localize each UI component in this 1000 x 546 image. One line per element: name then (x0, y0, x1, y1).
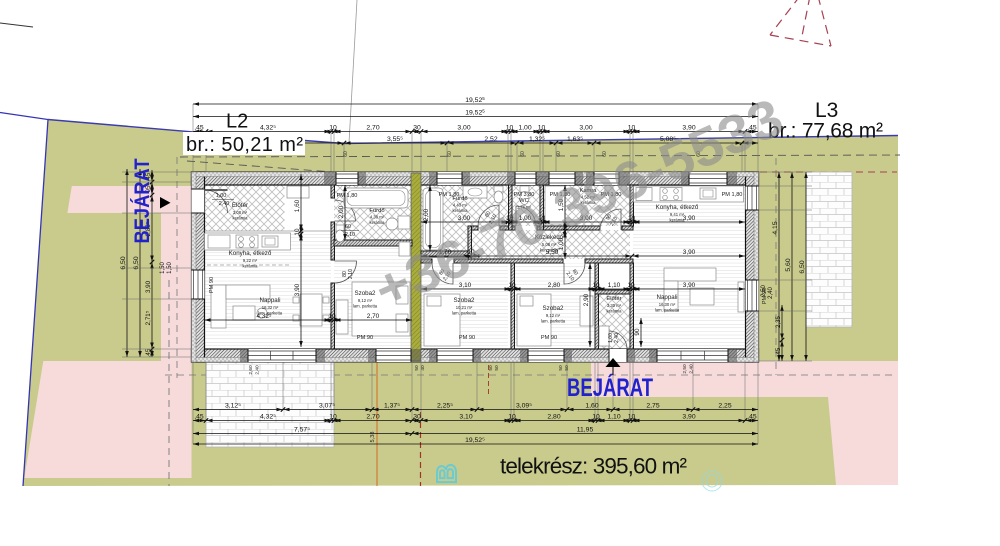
svg-text:Fürdő: Fürdő (369, 208, 384, 214)
svg-text:50: 50 (414, 365, 420, 371)
svg-text:9,12 m²: 9,12 m² (358, 298, 373, 303)
svg-text:7,57⁵: 7,57⁵ (294, 427, 310, 434)
svg-text:2,35: 2,35 (776, 316, 782, 328)
svg-text:50: 50 (494, 365, 500, 371)
svg-text:2,25⁵: 2,25⁵ (437, 403, 453, 410)
svg-text:30: 30 (413, 414, 421, 421)
svg-text:3,90: 3,90 (145, 280, 152, 293)
svg-text:60: 60 (602, 151, 608, 157)
svg-text:3,07⁵: 3,07⁵ (319, 403, 335, 410)
svg-text:2,90: 2,90 (583, 293, 590, 306)
svg-text:3,90: 3,90 (683, 282, 696, 289)
svg-text:Szoba2: Szoba2 (454, 297, 476, 304)
svg-text:1,37⁵: 1,37⁵ (384, 403, 400, 410)
svg-text:3,30 m²: 3,30 m² (607, 303, 622, 308)
svg-text:60: 60 (447, 151, 453, 157)
svg-text:kerámia: kerámia (243, 264, 259, 269)
svg-text:PM 90: PM 90 (459, 335, 475, 341)
svg-text:Előtér: Előtér (232, 202, 248, 209)
svg-text:,45: ,45 (194, 414, 204, 421)
svg-text:PM 1,80: PM 1,80 (722, 192, 743, 198)
svg-text:2,75: 2,75 (646, 403, 659, 410)
svg-text:30: 30 (413, 125, 421, 132)
svg-text:10: 10 (538, 125, 546, 132)
svg-text:60: 60 (345, 224, 351, 230)
svg-text:6,50: 6,50 (120, 256, 127, 269)
svg-text:10: 10 (592, 414, 600, 421)
svg-text:1,00: 1,00 (518, 125, 531, 132)
svg-text:3,10: 3,10 (459, 414, 472, 421)
svg-text:10: 10 (506, 125, 514, 132)
svg-text:Szoba2: Szoba2 (355, 290, 377, 297)
svg-text:B: B (431, 464, 462, 484)
svg-text:PM 90: PM 90 (762, 288, 768, 304)
svg-text:10: 10 (294, 228, 301, 236)
svg-text:10,21 m²: 10,21 m² (456, 305, 473, 310)
svg-text:2,10: 2,10 (345, 232, 355, 238)
svg-text:telekrész: 395,60 m²: telekrész: 395,60 m² (500, 454, 688, 479)
svg-text:lam. parketta: lam. parketta (452, 311, 477, 316)
svg-text:5,60: 5,60 (785, 258, 792, 271)
svg-text:,45: ,45 (747, 414, 757, 421)
svg-text:PM 90: PM 90 (541, 335, 557, 341)
svg-text:40: 40 (420, 365, 426, 371)
svg-text:kerámia: kerámia (370, 220, 386, 225)
svg-text:4,32⁵: 4,32⁵ (260, 125, 276, 132)
svg-text:10: 10 (628, 215, 636, 222)
svg-text:2,40: 2,40 (219, 201, 230, 207)
svg-text:2,25: 2,25 (718, 403, 731, 410)
svg-text:PM 90: PM 90 (357, 335, 373, 341)
svg-text:90: 90 (634, 328, 641, 336)
svg-text:br.: 50,21 m²: br.: 50,21 m² (186, 134, 303, 156)
svg-text:9,12 m²: 9,12 m² (546, 313, 561, 318)
svg-text:2,40: 2,40 (689, 364, 695, 374)
svg-text:19,525: 19,525 (465, 109, 485, 117)
svg-text:10: 10 (328, 313, 336, 320)
svg-text:4,43 m²: 4,43 m² (453, 203, 468, 208)
svg-text:3,90: 3,90 (682, 414, 695, 421)
svg-text:2,10: 2,10 (348, 269, 354, 279)
svg-text:3,90: 3,90 (294, 283, 301, 296)
svg-text:60: 60 (556, 151, 562, 157)
svg-text:lam. parketta: lam. parketta (655, 308, 680, 313)
svg-text:2,50: 2,50 (682, 364, 688, 374)
svg-text:lam. parketta: lam. parketta (353, 304, 378, 309)
svg-text:16,32 m²: 16,32 m² (262, 305, 279, 310)
svg-text:2,40: 2,40 (768, 287, 774, 299)
svg-text:2,70: 2,70 (367, 313, 380, 320)
svg-text:3,08 m²: 3,08 m² (233, 210, 248, 215)
svg-text:60: 60 (343, 151, 349, 157)
svg-text:,45: ,45 (194, 125, 204, 132)
svg-text:1,50: 1,50 (167, 262, 173, 274)
svg-text:BEJÁRAT: BEJÁRAT (131, 158, 154, 243)
svg-text:5,38: 5,38 (370, 432, 376, 443)
svg-text:kerámia: kerámia (453, 208, 469, 213)
svg-text:PM 90: PM 90 (209, 277, 215, 293)
svg-text:16,30 m²: 16,30 m² (659, 302, 676, 307)
svg-text:BEJÁRAT: BEJÁRAT (567, 373, 653, 402)
svg-text:Konyha, étkező: Konyha, étkező (229, 250, 272, 257)
svg-text:kerámia: kerámia (233, 216, 249, 221)
svg-text:lam. parketta: lam. parketta (258, 311, 283, 316)
svg-text:19,525: 19,525 (465, 96, 485, 104)
svg-text:PM 1,80: PM 1,80 (337, 193, 358, 199)
svg-text:2,71⁵: 2,71⁵ (145, 310, 152, 325)
svg-text:1,32⁵: 1,32⁵ (529, 136, 545, 143)
svg-text:4,15: 4,15 (772, 221, 779, 234)
svg-text:3,00: 3,00 (579, 125, 592, 132)
svg-text:10: 10 (628, 414, 636, 421)
svg-text:4,32⁵: 4,32⁵ (260, 414, 276, 421)
svg-text:1,00: 1,00 (216, 193, 227, 199)
svg-text:3,00: 3,00 (457, 125, 470, 132)
svg-text:1,60: 1,60 (585, 403, 598, 410)
svg-text:50: 50 (558, 365, 564, 371)
svg-text:1,60: 1,60 (294, 199, 301, 212)
svg-text:Nappali: Nappali (657, 294, 678, 301)
svg-text:,45: ,45 (145, 348, 152, 357)
svg-text:6,50: 6,50 (133, 256, 140, 269)
svg-text:kerámia: kerámia (607, 309, 623, 314)
svg-text:,45: ,45 (776, 347, 782, 356)
svg-text:2,00: 2,00 (338, 205, 345, 218)
svg-text:Nappali: Nappali (260, 297, 281, 304)
svg-text:1,50: 1,50 (160, 262, 166, 274)
svg-text:11,95: 11,95 (577, 427, 594, 434)
svg-text:2,40: 2,40 (614, 333, 620, 343)
svg-text:kerámia: kerámia (670, 218, 686, 223)
svg-text:PM 1,80: PM 1,80 (439, 192, 460, 198)
svg-text:60: 60 (520, 151, 526, 157)
svg-text:9,22 m²: 9,22 m² (243, 258, 258, 263)
svg-text:10: 10 (628, 125, 636, 132)
svg-text:50: 50 (488, 365, 494, 371)
svg-text:lam. parketta: lam. parketta (541, 319, 566, 324)
svg-text:3,90: 3,90 (683, 215, 696, 222)
svg-text:4,30 m²: 4,30 m² (370, 215, 385, 220)
svg-text:3,55⁵: 3,55⁵ (387, 136, 403, 143)
svg-text:2,80: 2,80 (547, 414, 560, 421)
svg-text:10: 10 (627, 282, 635, 289)
svg-text:3,09⁵: 3,09⁵ (516, 403, 532, 410)
svg-text:50: 50 (564, 365, 570, 371)
svg-text:9,41 m²: 9,41 m² (670, 212, 685, 217)
svg-text:3,90: 3,90 (683, 249, 696, 256)
svg-text:Konyha, étkező: Konyha, étkező (656, 204, 699, 211)
svg-text:2,70: 2,70 (366, 125, 379, 132)
svg-text:10: 10 (329, 414, 337, 421)
svg-text:19,52⁵: 19,52⁵ (465, 437, 485, 444)
svg-text:1,10: 1,10 (607, 414, 620, 421)
svg-text:6,50: 6,50 (799, 260, 806, 273)
svg-text:2,70: 2,70 (366, 414, 379, 421)
svg-text:1,63⁵: 1,63⁵ (567, 136, 583, 143)
svg-text:2,40: 2,40 (255, 365, 261, 375)
svg-text:2,60: 2,60 (248, 365, 254, 375)
svg-text:3,12⁵: 3,12⁵ (225, 403, 241, 410)
svg-text:Szoba2: Szoba2 (543, 305, 565, 312)
svg-text:2,52: 2,52 (484, 136, 497, 143)
svg-text:2,80: 2,80 (548, 282, 561, 289)
svg-text:2,00: 2,00 (423, 208, 430, 221)
svg-text:1,10: 1,10 (608, 282, 621, 289)
svg-text:10: 10 (592, 282, 600, 289)
svg-text:L2: L2 (226, 111, 248, 133)
svg-text:10: 10 (508, 414, 516, 421)
svg-text:10: 10 (329, 125, 337, 132)
svg-text:10: 10 (508, 282, 516, 289)
svg-text:Előtér: Előtér (606, 296, 621, 302)
